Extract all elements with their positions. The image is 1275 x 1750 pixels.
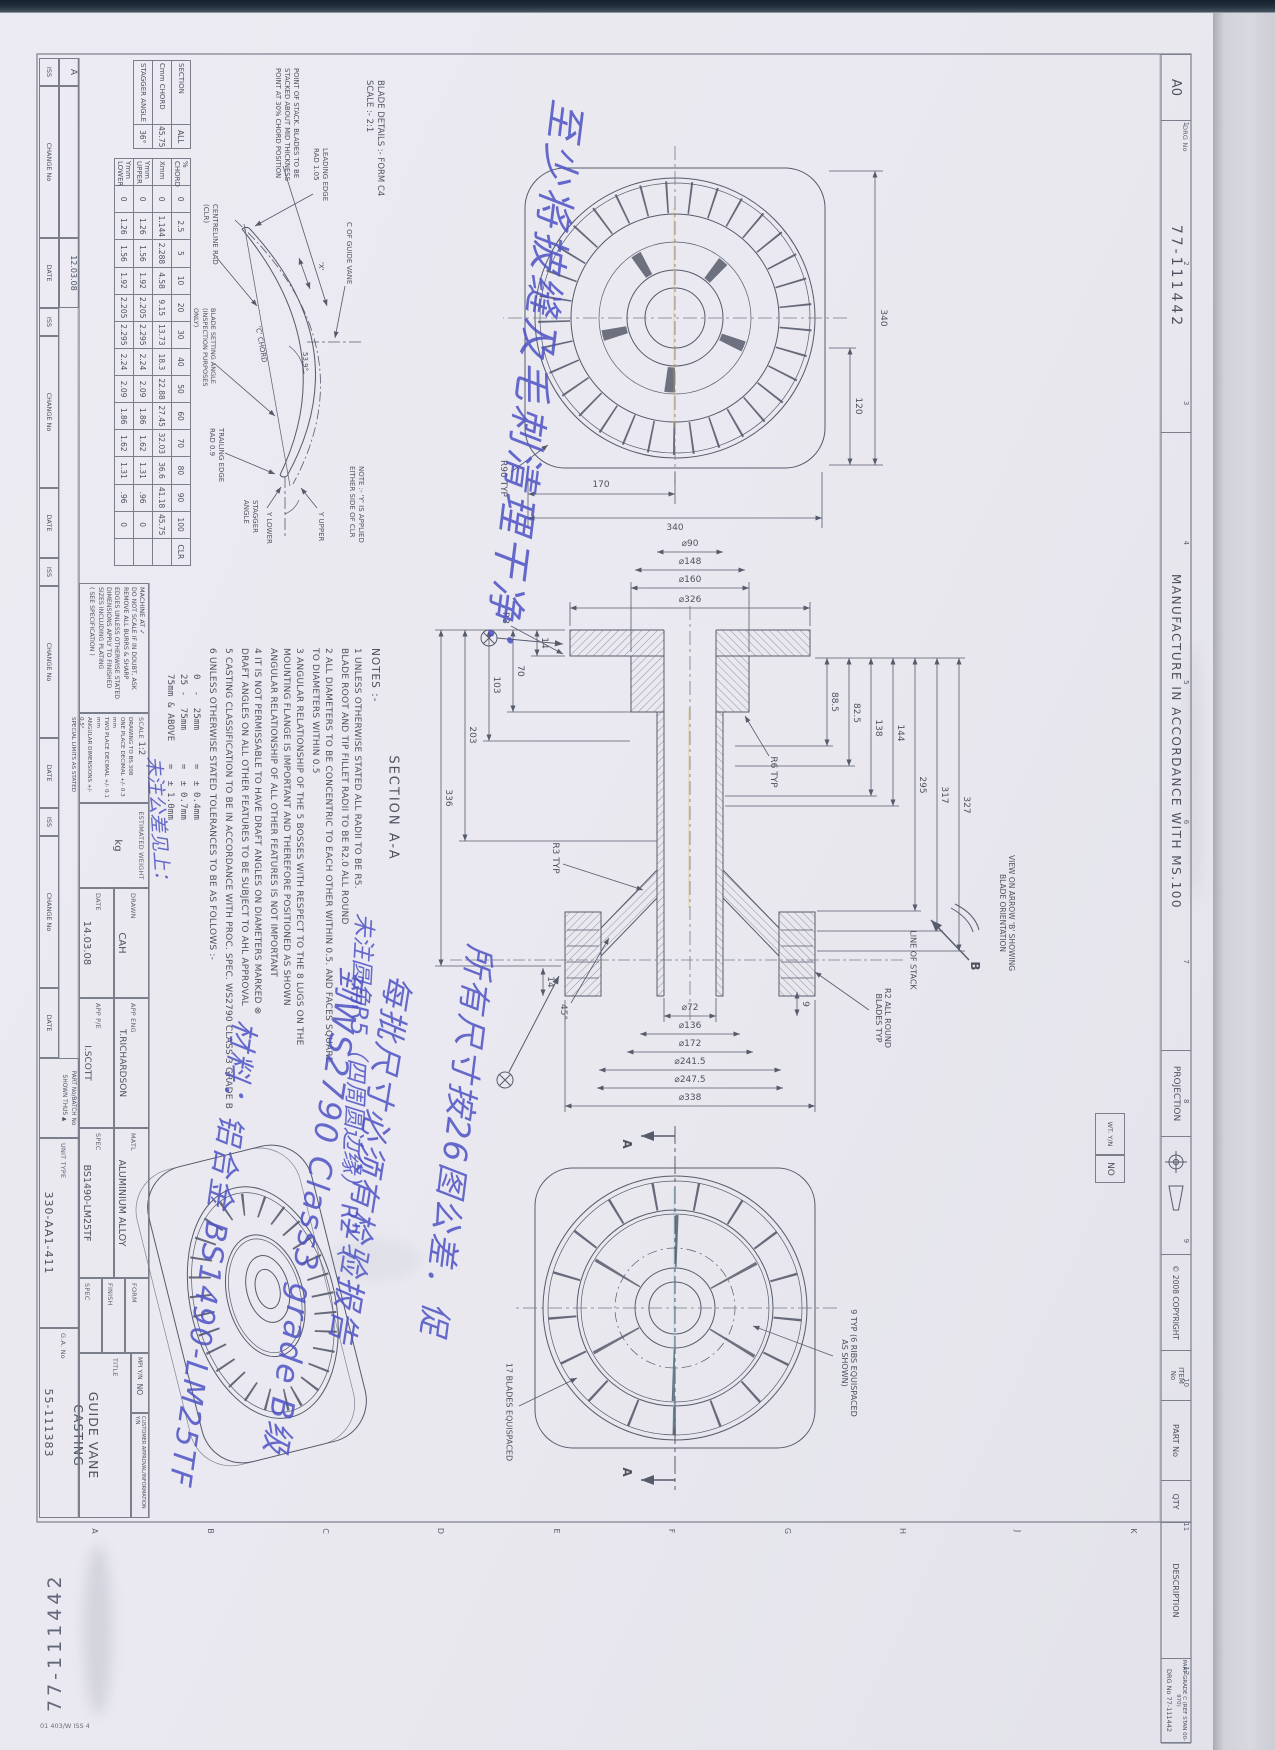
dia-148: ⌀148 <box>679 557 702 567</box>
dia-160: ⌀160 <box>679 575 702 585</box>
dim-138: 138 <box>873 719 883 736</box>
dim-82-5: 82.5 <box>851 703 861 723</box>
finish-cell: FINISH <box>102 1278 125 1353</box>
view-b-letter: B <box>968 961 982 970</box>
dim-203: 203 <box>467 726 477 743</box>
dia-172: ⌀172 <box>679 1039 702 1049</box>
part-batch-cell: PART No/BATCH No SHOWN THUS ▲ <box>39 1058 79 1138</box>
app-pe-label: APP P/E <box>94 1003 102 1029</box>
description-cell: DESCRIPTION <box>1161 1522 1191 1658</box>
drawn-label: DRAWN <box>129 893 137 919</box>
spec2-cell: SPEC <box>79 1278 102 1353</box>
rev-h-date-3: DATE <box>39 738 59 808</box>
label-r2-blades: R2 ALL ROUND BLADES TYP <box>874 988 892 1048</box>
view-b-note: VIEW ON ARROW 'B' SHOWING BLADE ORIENTAT… <box>998 855 1016 971</box>
scanner-edge-strip <box>0 0 1275 13</box>
rev-h-date-1: DATE <box>39 238 59 308</box>
drg-no-label: DRG No <box>1181 125 1189 152</box>
dim-103: 103 <box>491 676 501 693</box>
te-label: TRAILING EDGE RAD 0.9 <box>207 428 225 482</box>
rev-h-iss-1: ISS <box>39 58 59 86</box>
est-weight-label: ESTIMATED WEIGHT <box>137 804 145 887</box>
rev-h-iss-4: ISS <box>39 808 59 836</box>
note-tolerances: 0 - 25mm = ± 0.4mm 25 - 75mm = ± 0.7mm 7… <box>163 674 202 1188</box>
x-label: 'X' <box>317 262 325 271</box>
app-pe-cell: APP P/E I.SCOTT <box>79 998 114 1128</box>
unit-type-cell: UNIT TYPE 330-AA1-411 <box>39 1138 79 1328</box>
scan-smudge-1 <box>84 1545 112 1715</box>
scale-cell: SCALE 1:2 DRAWING TO BS.308 ONE PLACE DE… <box>79 713 149 803</box>
rev-h-date-4: DATE <box>39 988 59 1058</box>
date-value: 14.03.08 <box>81 893 92 993</box>
drg-no-cell: DRG No 77-111442 <box>1161 120 1191 432</box>
dim-9: 9 <box>800 1001 810 1007</box>
part-grade: PART GRADE C (REF STAN 00-970) <box>1175 1659 1187 1742</box>
date-cell: DATE 14.03.08 <box>79 888 114 998</box>
ribs-note: 9 TYP (6 RIBS EQUISPACED AS SHOWN) <box>840 1309 858 1417</box>
zone-letters: KJHGFEDCBA <box>37 1524 1191 1538</box>
ga-no-cell: G.A. No 55-111383 <box>39 1328 79 1518</box>
setting-label: BLADE SETTING ANGLE (INSPECTION PURPOSES… <box>192 308 217 387</box>
le-label: LEADING EDGE RAD 1.05 <box>311 148 329 201</box>
clr-label: CENTRELINE RAD (CLR) <box>201 204 219 265</box>
scan-smudge-3 <box>330 1240 420 1280</box>
drawn-value: CAH <box>116 893 127 993</box>
matl-label: MATL <box>129 1133 137 1151</box>
dia-241-5: ⌀241.5 <box>674 1057 705 1067</box>
part-no-cell: PART No <box>1161 1400 1191 1480</box>
blade-coordinates-table: % CHORD02.55102030405060708090100CLRXmm0… <box>114 158 191 566</box>
cut-arrow-a2: A <box>620 1467 634 1476</box>
rev-entry-date: 12.03.08 <box>59 238 79 308</box>
rev-h-iss-2: ISS <box>39 308 59 336</box>
corner-drg: DRG No 77-111442 <box>1165 1669 1173 1732</box>
do-not-scale-cell: MACHINE AT ✓ DO NOT SCALE IF IN DOUBT, A… <box>79 583 149 713</box>
corner-drg-number: 77-111442 <box>44 1572 66 1712</box>
unit-type-value: 330-AA1-411 <box>42 1143 55 1323</box>
projection-cell: PROJECTION <box>1161 1050 1191 1136</box>
app-pe-value: I.SCOTT <box>82 1003 92 1123</box>
rev-entry-change <box>59 86 79 238</box>
label-r6: R6 TYP <box>768 756 778 787</box>
machine-at: MACHINE AT ✓ <box>138 587 146 709</box>
spec-value: BS1490-LM25TF <box>81 1133 92 1273</box>
blade-info-grid: SECTIONALLCmm CHORD45.75STAGGER ANGLE36° <box>133 60 191 149</box>
dim-295: 295 <box>917 776 927 793</box>
rev-h-change-4: CHANGE No <box>39 836 59 988</box>
qty-cell: QTY <box>1161 1480 1191 1522</box>
spec-label: SPEC <box>94 1133 102 1151</box>
y-upper-label: Y UPPER <box>317 512 325 541</box>
blade-profile-sketch <box>215 166 361 538</box>
spec-cell: SPEC BS1490-LM25TF <box>79 1128 114 1278</box>
ga-no-value: 55-111383 <box>42 1333 55 1513</box>
scale-value: 1:2 <box>136 742 146 756</box>
label-line-of-stack: LINE OF STACK <box>909 930 918 989</box>
y-note: NOTE :- 'Y' IS APPLIED EITHER SIDE OF CL… <box>347 466 365 543</box>
rotated-drawing-sheet: 123456789101112 KJHGFEDCBA A0 DRG No 77-… <box>25 8 1205 1748</box>
copyright-cell: © 2008 COPYRIGHT <box>1161 1254 1191 1350</box>
dia-326: ⌀326 <box>679 595 702 605</box>
scan-smudge-2 <box>1186 640 1202 900</box>
mpi-cell: MPI Y/NNO <box>131 1353 149 1413</box>
title-cell: TITLE GUIDE VANE CASTING <box>79 1353 131 1518</box>
dim-340-top: 340 <box>878 309 888 326</box>
blade-caption: BLADE DETAILS :- FORM C4 SCALE :- 2:1 <box>363 80 385 196</box>
scanned-engineering-drawing: { "border": { "size": "A0", "drg_label":… <box>0 0 1275 1750</box>
part-grade-cell: PART GRADE C (REF STAN 00-970) DRG No 77… <box>1161 1658 1191 1743</box>
cut-arrow-a1: A <box>620 1139 634 1148</box>
drawn-cell: DRAWN CAH <box>114 888 149 998</box>
app-eng-label: APP ENG <box>129 1003 137 1033</box>
rev-entry-iss: A <box>59 58 79 86</box>
note-3: 3 ANGULAR RELATIONSHIP OF THE 5 BOSSES W… <box>266 648 305 1188</box>
dim-317: 317 <box>939 786 949 803</box>
wt-box: WT. Y/N NO <box>1095 1113 1125 1183</box>
scale-label: SCALE <box>137 717 145 739</box>
dim-170: 170 <box>592 480 609 490</box>
rev-h-change-2: CHANGE No <box>39 336 59 488</box>
rev-h-change-1: CHANGE No <box>39 86 59 238</box>
matl-value: ALUMINIUM ALLOY <box>116 1133 127 1273</box>
est-weight-value: kg <box>112 804 123 887</box>
dia-72: ⌀72 <box>682 1003 699 1013</box>
rev-h-date-2: DATE <box>39 488 59 558</box>
rev-h-change-3: CHANGE No <box>39 586 59 738</box>
section-caption: SECTION A-A <box>386 755 401 860</box>
paper-right-edge-shadow <box>1213 10 1275 1750</box>
standards-text: DRAWING TO BS.308 ONE PLACE DECIMAL +/- … <box>69 717 134 799</box>
app-eng-cell: APP ENG T.RICHARDSON <box>114 998 149 1128</box>
dim-tip-14: 14 <box>545 976 555 987</box>
do-not-scale-text: DO NOT SCALE IF IN DOUBT, ASK REMOVE ALL… <box>87 587 137 709</box>
blade-coordinates-grid: % CHORD02.55102030405060708090100CLRXmm0… <box>114 158 191 566</box>
blades-note: 17 BLADES EQUISPACED <box>505 1363 514 1461</box>
dim-14: 14 <box>539 637 549 648</box>
projection-symbol-cell <box>1161 1136 1191 1220</box>
est-weight-cell: ESTIMATED WEIGHT kg <box>79 803 149 888</box>
dia-247-5: ⌀247.5 <box>674 1075 705 1085</box>
title-label: TITLE <box>111 1358 119 1377</box>
view-b-arrow <box>931 904 979 960</box>
dim-340-side: 340 <box>666 523 683 533</box>
dim-120: 120 <box>853 397 863 414</box>
label-r3-typ: R3 TYP <box>550 842 560 873</box>
form-cell: FORM <box>125 1278 149 1353</box>
angle-53-9: 53.9° <box>301 352 309 371</box>
dim-336: 336 <box>443 789 453 806</box>
stack-note: POINT OF STACK. BLADES TO BE STACKED ABO… <box>274 68 300 181</box>
matl-cell: MATL ALUMINIUM ALLOY <box>114 1128 149 1278</box>
blade-info-table: SECTIONALLCmm CHORD45.75STAGGER ANGLE36° <box>133 60 191 149</box>
dim-327: 327 <box>961 796 971 813</box>
customer-approval-cell: CUSTOMER APPROVAL/INFORMATION Y/N <box>131 1413 149 1518</box>
app-eng-value: T.RICHARDSON <box>117 1003 127 1123</box>
dim-88-5: 88.5 <box>829 692 839 712</box>
dia-136: ⌀136 <box>679 1021 702 1031</box>
sheet-size-cell: A0 <box>1161 54 1191 120</box>
dim-144: 144 <box>895 724 905 741</box>
cl-label: C OF GUIDE VANE <box>345 222 353 284</box>
dia-90: ⌀90 <box>682 539 699 549</box>
dim-45deg: 45° <box>558 1004 568 1020</box>
date-label: DATE <box>94 893 102 911</box>
y-lower-label: Y LOWER <box>265 512 273 544</box>
stagger-label: STAGGER ANGLE <box>241 500 259 533</box>
form-code: 01 403/W ISS 4 <box>40 1722 90 1730</box>
item-no-cell: ITEM No <box>1161 1350 1191 1400</box>
rev-h-iss-3: ISS <box>39 558 59 586</box>
dia-338: ⌀338 <box>679 1093 702 1103</box>
drg-no-value: 77-111442 <box>1168 225 1184 328</box>
